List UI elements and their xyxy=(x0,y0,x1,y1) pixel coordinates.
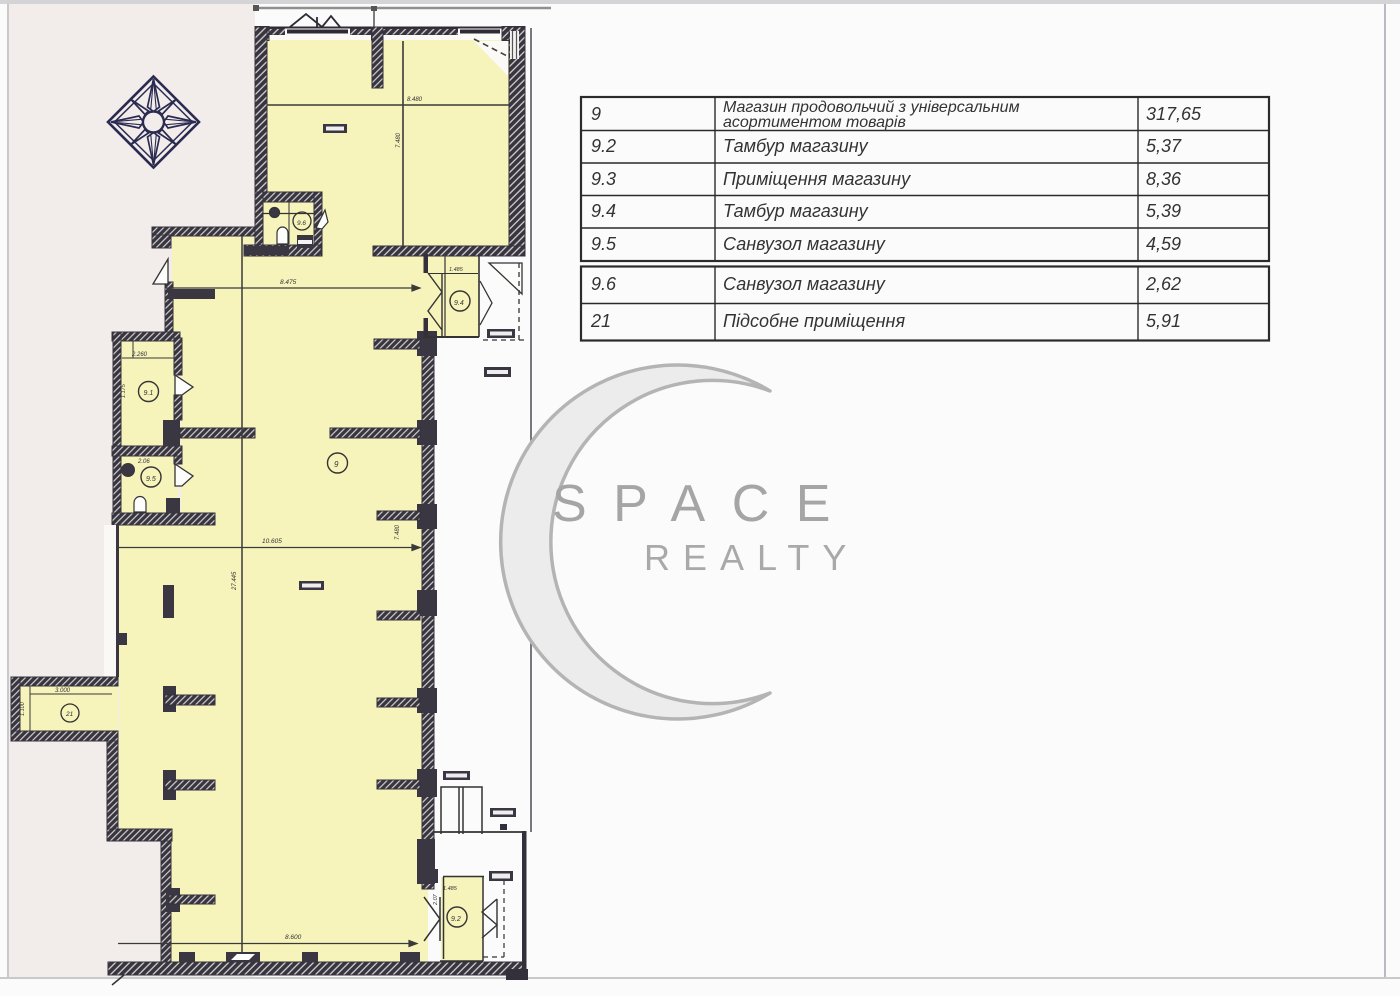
svg-text:9.6: 9.6 xyxy=(297,220,306,227)
svg-text:27.445: 27.445 xyxy=(232,571,238,591)
svg-text:9.2: 9.2 xyxy=(451,916,461,923)
svg-text:9.4: 9.4 xyxy=(591,201,616,221)
svg-text:Підсобне приміщення: Підсобне приміщення xyxy=(723,311,905,331)
svg-text:5,91: 5,91 xyxy=(1146,311,1181,331)
svg-text:9.6: 9.6 xyxy=(591,274,617,294)
svg-text:1.175: 1.175 xyxy=(121,383,127,398)
svg-text:8.600: 8.600 xyxy=(285,934,302,941)
svg-text:9.4: 9.4 xyxy=(454,300,464,307)
svg-text:9.5: 9.5 xyxy=(591,234,617,254)
svg-text:9.2: 9.2 xyxy=(591,136,616,156)
svg-text:4,59: 4,59 xyxy=(1146,234,1181,254)
svg-text:8.475: 8.475 xyxy=(280,279,297,286)
svg-text:5,37: 5,37 xyxy=(1146,136,1182,156)
svg-text:1.485: 1.485 xyxy=(449,267,464,273)
svg-text:317,65: 317,65 xyxy=(1146,104,1202,124)
svg-text:8,36: 8,36 xyxy=(1146,169,1182,189)
svg-text:7.480: 7.480 xyxy=(395,524,401,540)
svg-text:21: 21 xyxy=(590,311,611,331)
svg-text:3.000: 3.000 xyxy=(55,688,71,694)
svg-text:8.480: 8.480 xyxy=(407,97,423,103)
svg-text:2,62: 2,62 xyxy=(1145,274,1181,294)
svg-text:Тамбур магазину: Тамбур магазину xyxy=(723,136,869,156)
svg-text:9.5: 9.5 xyxy=(146,476,156,483)
svg-text:Санвузол магазину: Санвузол магазину xyxy=(723,274,886,294)
svg-text:SPACE: SPACE xyxy=(552,475,857,533)
svg-text:7.480: 7.480 xyxy=(396,132,402,148)
svg-text:5,39: 5,39 xyxy=(1146,201,1181,221)
svg-text:Санвузол магазину: Санвузол магазину xyxy=(723,234,886,254)
svg-text:10.605: 10.605 xyxy=(262,538,282,545)
svg-text:9: 9 xyxy=(334,460,339,469)
svg-text:Приміщення магазину: Приміщення магазину xyxy=(723,169,911,189)
svg-text:REALTY: REALTY xyxy=(644,537,859,578)
svg-text:2.260: 2.260 xyxy=(131,352,148,358)
svg-text:2.06: 2.06 xyxy=(137,459,150,465)
svg-text:1.100: 1.100 xyxy=(20,701,26,716)
svg-text:21: 21 xyxy=(65,711,74,718)
svg-text:2.07: 2.07 xyxy=(433,893,439,906)
svg-text:асортиментом товарів: асортиментом товарів xyxy=(723,114,906,131)
svg-text:9.3: 9.3 xyxy=(591,169,616,189)
svg-text:9.1: 9.1 xyxy=(144,390,154,397)
svg-text:1.485: 1.485 xyxy=(443,886,458,892)
svg-text:Тамбур магазину: Тамбур магазину xyxy=(723,201,869,221)
svg-text:9: 9 xyxy=(591,104,601,124)
